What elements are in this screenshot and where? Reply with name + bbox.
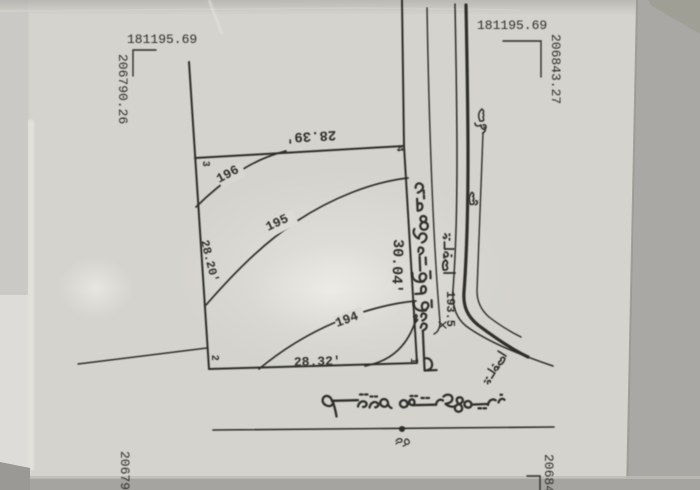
svg-text:206790.26: 206790.26 — [115, 54, 130, 124]
svg-text:28.32': 28.32' — [294, 354, 341, 370]
svg-text:206843.27: 206843.27 — [548, 34, 563, 104]
svg-text:181195.69: 181195.69 — [127, 32, 197, 47]
svg-text:4: 4 — [394, 146, 405, 152]
svg-text:1: 1 — [408, 358, 419, 364]
svg-text:193.5: 193.5 — [443, 291, 457, 327]
svg-text:30.04': 30.04' — [387, 239, 406, 294]
svg-text:181195.69: 181195.69 — [477, 18, 547, 33]
svg-text:20684: 20684 — [541, 454, 556, 490]
svg-text:3: 3 — [200, 161, 211, 167]
svg-text:2: 2 — [209, 355, 220, 361]
svg-text:206791: 206791 — [117, 451, 132, 490]
svg-text:28.39': 28.39' — [285, 126, 336, 145]
